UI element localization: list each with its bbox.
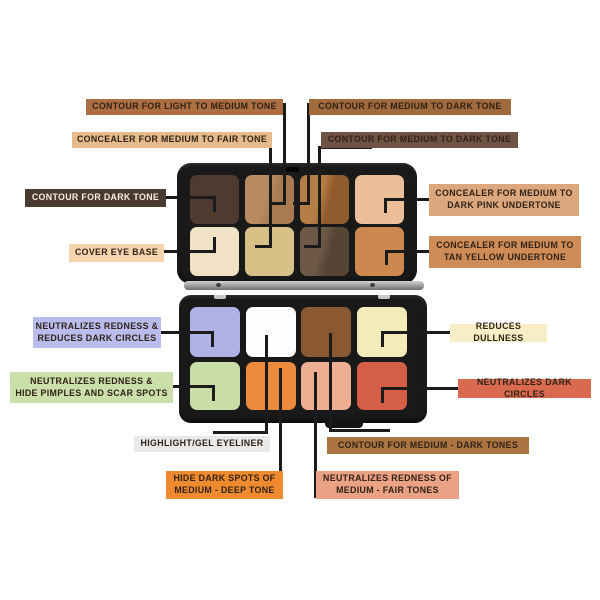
- neutralizes-redness-reduces-dark-circles-label: NEUTRALIZES REDNESS & REDUCES DARK CIRCL…: [33, 317, 161, 348]
- highlight-gel-eyeliner-label: HIGHLIGHT/GEL EYELINER: [134, 436, 270, 452]
- neutralizes-redness-medium-fair-label: NEUTRALIZES REDNESS OF MEDIUM - FAIR TON…: [316, 471, 459, 499]
- pan-neutralizes-redness-medium-fair: [301, 362, 351, 410]
- concealer-medium-dark-pink-undertone-label: CONCEALER FOR MEDIUM TO DARK PINK UNDERT…: [429, 184, 579, 216]
- concealer-medium-to-fair-tone-label: CONCEALER FOR MEDIUM TO FAIR TONE: [72, 132, 272, 148]
- contour-medium-to-dark-tone-1-label: CONTOUR FOR MEDIUM TO DARK TONE: [309, 99, 511, 115]
- contour-dark-tone-label: CONTOUR FOR DARK TONE: [25, 189, 166, 207]
- connector-neutralizes-dark-circles: [381, 387, 458, 390]
- connector-neutralizes-redness-hide-pimples: [170, 385, 215, 388]
- hide-dark-spots-medium-deep-label: HIDE DARK SPOTS OF MEDIUM - DEEP TONE: [166, 471, 283, 499]
- pan-contour-medium-to-dark-tone-2: [300, 227, 349, 276]
- hinge-rim: [184, 281, 424, 290]
- connector-contour-light-to-medium-tone: [283, 103, 286, 205]
- cover-eye-base-label: COVER EYE BASE: [69, 244, 164, 262]
- neutralizes-redness-hide-pimples-label: NEUTRALIZES REDNESS & HIDE PIMPLES AND S…: [10, 372, 173, 403]
- connector-neutralizes-dark-circles: [381, 387, 384, 403]
- connector-highlight-gel-eyeliner: [265, 335, 268, 434]
- pan-hide-dark-spots-medium-deep: [246, 362, 296, 410]
- concealer-medium-tan-yellow-undertone-label: CONCEALER FOR MEDIUM TO TAN YELLOW UNDER…: [429, 236, 581, 268]
- connector-contour-medium-dark-tones: [329, 429, 390, 432]
- connector-neutralizes-redness-reduces-dark-circles: [158, 331, 214, 334]
- connector-concealer-medium-tan-yellow-undertone: [385, 250, 388, 265]
- hinge-notch-right: [378, 295, 390, 299]
- hinge-notch-left: [214, 295, 226, 299]
- hinge-screw-right: [370, 283, 375, 287]
- connector-contour-medium-to-dark-tone-1: [307, 103, 310, 205]
- pan-highlight-gel-eyeliner: [246, 307, 296, 357]
- connector-concealer-medium-dark-pink-undertone: [384, 198, 387, 213]
- connector-neutralizes-redness-reduces-dark-circles: [211, 331, 214, 347]
- connector-highlight-gel-eyeliner: [213, 431, 268, 434]
- connector-contour-dark-tone: [164, 196, 216, 199]
- neutralizes-dark-circles-label: NEUTRALIZES DARK CIRCLES: [458, 379, 591, 398]
- connector-concealer-medium-tan-yellow-undertone: [385, 250, 429, 253]
- connector-neutralizes-redness-hide-pimples: [212, 385, 215, 401]
- connector-cover-eye-base: [162, 250, 216, 253]
- connector-contour-medium-to-dark-tone-2: [318, 146, 321, 248]
- connector-reduces-dullness: [381, 331, 384, 347]
- contour-medium-dark-tones-label: CONTOUR FOR MEDIUM - DARK TONES: [327, 437, 529, 454]
- connector-reduces-dullness: [381, 331, 450, 334]
- contour-medium-to-dark-tone-2-label: CONTOUR FOR MEDIUM TO DARK TONE: [321, 132, 518, 148]
- reduces-dullness-label: REDUCES DULLNESS: [450, 324, 547, 342]
- connector-contour-medium-dark-tones: [329, 333, 332, 432]
- connector-concealer-medium-to-fair-tone: [255, 245, 272, 248]
- connector-cover-eye-base: [213, 237, 216, 253]
- connector-concealer-medium-dark-pink-undertone: [384, 198, 429, 201]
- pan-contour-medium-dark-tones: [301, 307, 351, 357]
- connector-concealer-medium-to-fair-tone: [269, 139, 272, 248]
- contour-light-to-medium-tone-label: CONTOUR FOR LIGHT TO MEDIUM TONE: [86, 99, 283, 115]
- connector-contour-dark-tone: [213, 196, 216, 212]
- hinge-screw-left: [216, 283, 221, 287]
- connector-contour-medium-to-dark-tone-2: [304, 245, 321, 248]
- palette-infographic: CONTOUR FOR LIGHT TO MEDIUM TONECONTOUR …: [0, 0, 600, 600]
- connector-contour-medium-to-dark-tone-1: [293, 202, 310, 205]
